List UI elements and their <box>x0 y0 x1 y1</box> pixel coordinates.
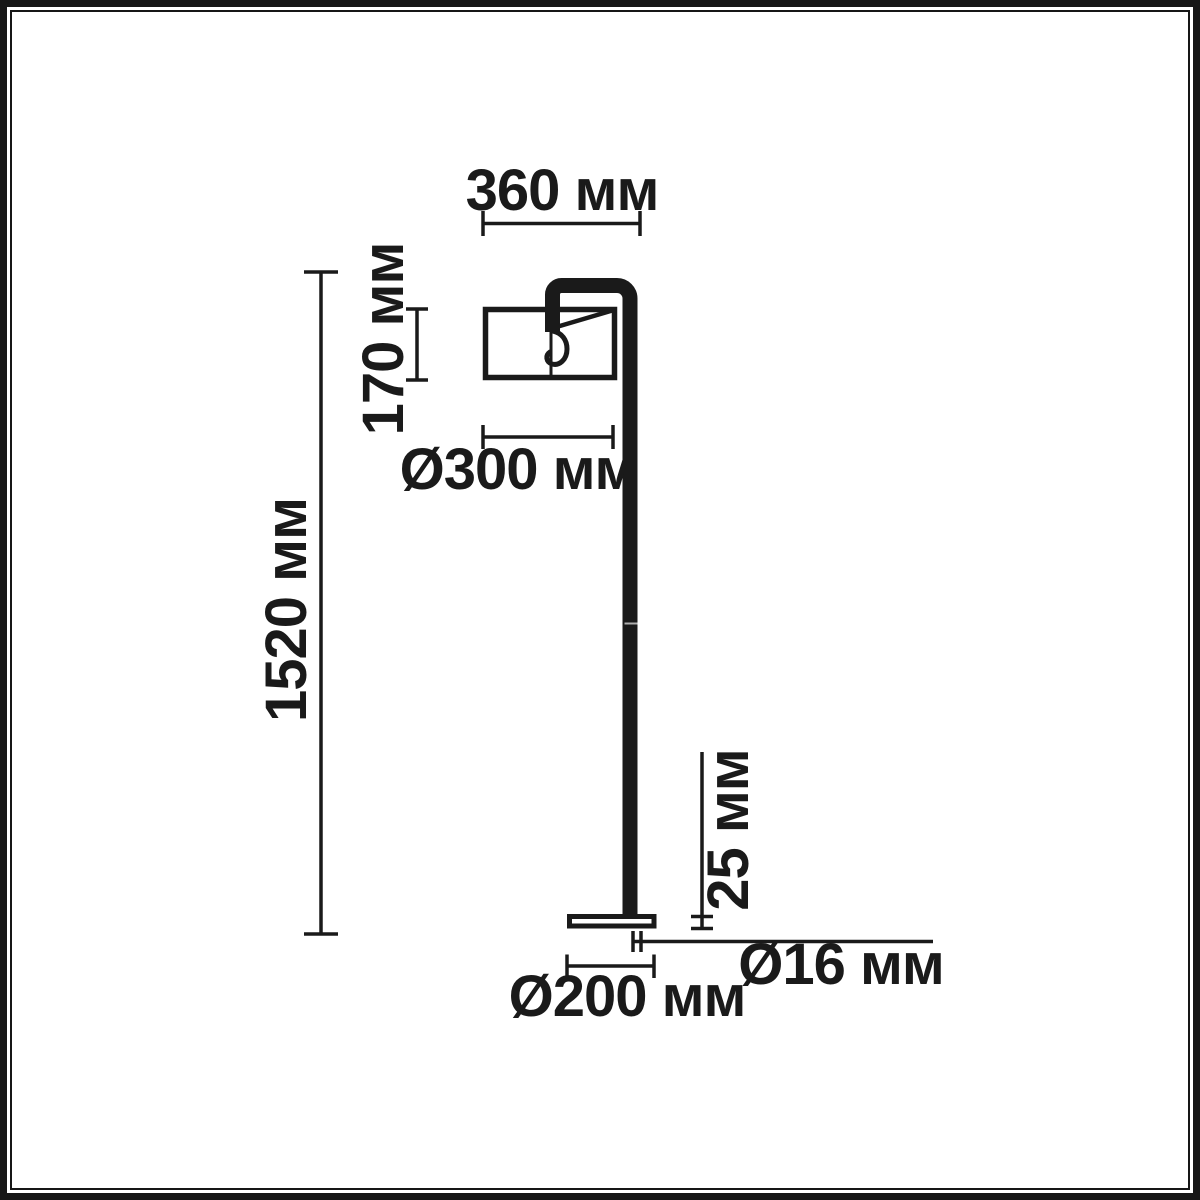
lamp-base <box>570 917 655 927</box>
dim-label-pole-diameter: Ø16 мм <box>738 936 944 994</box>
dim-label-base-diameter: Ø200 мм <box>509 968 746 1026</box>
dim-label-shade-height: 170 мм <box>355 243 413 436</box>
technical-drawing-canvas: 360 мм 170 мм Ø300 мм 1520 мм 25 мм Ø16 … <box>0 0 1200 1200</box>
dim-label-total-height: 1520 мм <box>258 498 316 722</box>
dim-label-shade-width: 360 мм <box>466 162 659 220</box>
dim-label-shade-diameter: Ø300 мм <box>400 441 637 499</box>
dim-label-base-height: 25 мм <box>700 749 758 910</box>
lamp-drawing <box>486 286 655 927</box>
